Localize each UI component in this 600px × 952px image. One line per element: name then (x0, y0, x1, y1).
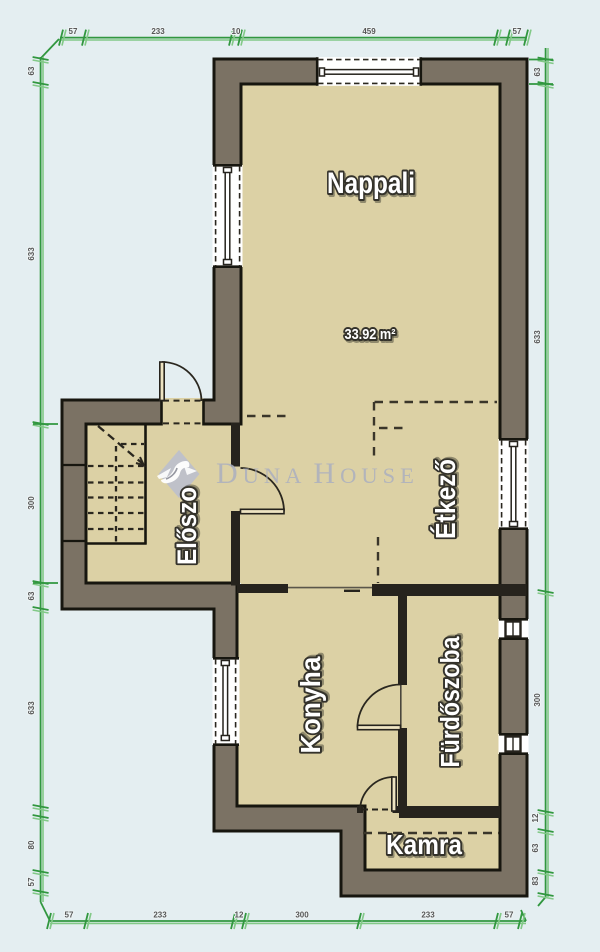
svg-text:33.92 m²: 33.92 m² (345, 327, 396, 343)
svg-text:Fürdőszoba: Fürdőszoba (437, 636, 465, 768)
svg-text:Nappali: Nappali (327, 167, 415, 200)
svg-text:57: 57 (513, 27, 522, 36)
svg-text:Kamra: Kamra (386, 829, 463, 860)
svg-text:459: 459 (362, 27, 376, 36)
svg-text:63: 63 (531, 843, 540, 852)
svg-text:83: 83 (531, 876, 540, 885)
svg-text:63: 63 (27, 591, 36, 600)
svg-text:233: 233 (153, 911, 167, 920)
svg-text:57: 57 (505, 911, 514, 920)
svg-text:Étkező: Étkező (430, 459, 461, 539)
svg-text:633: 633 (27, 701, 36, 715)
svg-text:57: 57 (69, 27, 78, 36)
svg-text:233: 233 (151, 27, 165, 36)
svg-text:300: 300 (27, 496, 36, 510)
svg-text:Konyha: Konyha (295, 656, 326, 753)
svg-text:233: 233 (421, 911, 435, 920)
svg-text:57: 57 (65, 911, 74, 920)
svg-text:10: 10 (232, 27, 241, 36)
svg-text:57: 57 (27, 877, 36, 886)
svg-text:633: 633 (533, 330, 542, 344)
svg-text:300: 300 (533, 693, 542, 707)
svg-text:12: 12 (235, 911, 244, 920)
svg-text:633: 633 (27, 247, 36, 261)
svg-text:63: 63 (27, 66, 36, 75)
svg-text:63: 63 (533, 67, 542, 76)
svg-text:Előszo: Előszo (172, 487, 202, 565)
svg-text:80: 80 (27, 840, 36, 849)
svg-text:12: 12 (531, 813, 540, 822)
svg-text:300: 300 (295, 911, 309, 920)
